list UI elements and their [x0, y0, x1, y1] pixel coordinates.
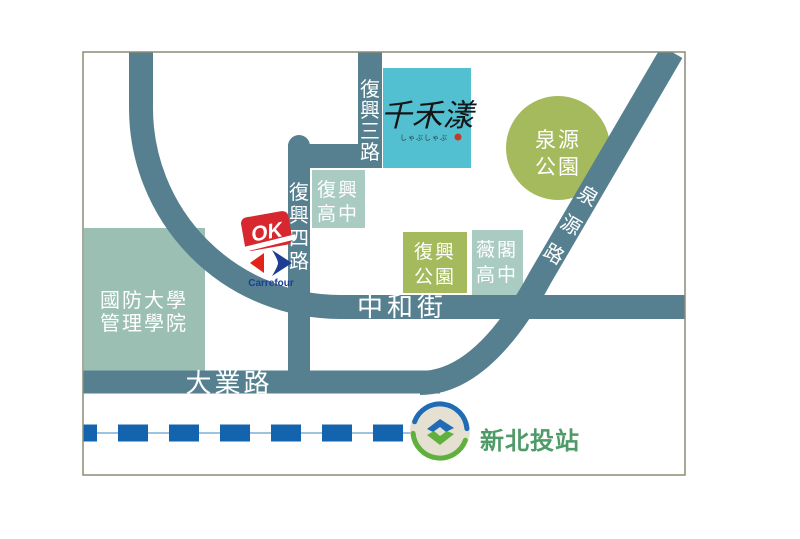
- road-label-fuxing-3rd: 復 興 三 路: [360, 78, 380, 164]
- brand-logo: 千禾漾 しゃぶしゃぶ: [381, 68, 478, 168]
- weige-hs-label-line2: 高中: [476, 264, 518, 286]
- fuxing-park-label-line1: 復興: [414, 241, 456, 263]
- road-label-char: 興: [360, 99, 380, 122]
- quanyuan-park-label-line2: 公園: [535, 156, 581, 179]
- map-canvas: 國防大學 管理學院 復興 高中 薇閣 高中 復興 公園 泉源 公園 復 興 三 …: [0, 0, 800, 539]
- weige-hs-label-line1: 薇閣: [476, 239, 518, 261]
- ndu-label-line1: 國防大學: [100, 289, 188, 312]
- road-label-char: 路: [360, 141, 380, 164]
- road-label-daye: 大業路: [185, 368, 272, 398]
- ndu-label-line2: 管理學院: [100, 312, 188, 335]
- metro-logo-icon: [410, 402, 470, 460]
- station-label: 新北投站: [480, 427, 580, 455]
- road-label-char: 三: [360, 121, 380, 143]
- carrefour-logo-text: Carrefour: [248, 278, 294, 289]
- map: 國防大學 管理學院 復興 高中 薇閣 高中 復興 公園 泉源 公園 復 興 三 …: [0, 0, 800, 539]
- fuxing-hs-label-line1: 復興: [317, 179, 359, 201]
- road-label-char: 復: [289, 181, 309, 204]
- quanyuan-park-label-line1: 泉源: [535, 129, 581, 152]
- road-label-char: 興: [289, 204, 309, 227]
- brand-tagline: しゃぶしゃぶ: [400, 134, 448, 142]
- road-label-char: 路: [289, 250, 309, 273]
- fuxing-park-label-line2: 公園: [414, 267, 456, 288]
- road-label-char: 復: [360, 78, 380, 101]
- road-label-zhonghe: 中和街: [357, 292, 447, 322]
- fuxing-hs-label-line2: 高中: [317, 203, 359, 225]
- brand-seal-icon: [455, 134, 462, 141]
- brand-name: 千禾漾: [381, 98, 478, 134]
